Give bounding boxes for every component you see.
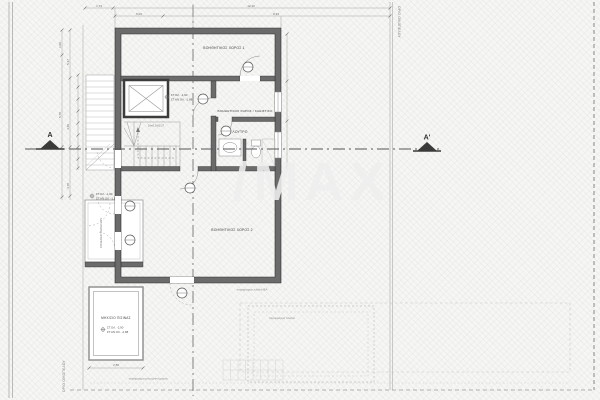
elevator-shaft xyxy=(124,80,168,117)
drawing-sheet: ΟΡΙΟ ΟΙΚΟΠΕΔΟΥ ΟΡΙΟ ΟΙΚΟΠΕΔΟΥ περίφραγμα… xyxy=(0,0,600,400)
dim-left4: 4,40 xyxy=(66,124,70,130)
stair-up-arrow xyxy=(138,130,174,158)
stair-note: 16×0,19/0,27 xyxy=(148,124,165,128)
floor-plan-svg: ΟΡΙΟ ΟΙΚΟΠΕΔΟΥ ΟΡΙΟ ΟΙΚΟΠΕΔΟΥ περίφραγμα… xyxy=(0,0,600,400)
fence-label-side: περίφραγμα πλαϊνό xyxy=(269,316,295,320)
dim-top1b: 12,10 xyxy=(247,4,255,8)
room-label-bath: ΛΟΥΤΡΟ xyxy=(232,130,247,134)
room-label-aux2: ΒΟΗΘΗΤΙΚΟΣ ΧΩΡΟΣ 2 xyxy=(211,228,253,232)
dim-left5: 4,70 xyxy=(66,183,70,189)
staircase xyxy=(124,122,180,167)
boundary-label-left: ΟΡΙΟ ΟΙΚΟΠΕΔΟΥ xyxy=(62,360,66,392)
room-label-aux1: ΒΟΗΘΗΤΙΚΟΣ ΧΩΡΟΣ 1 xyxy=(203,46,245,50)
section-label-a: A xyxy=(47,132,52,139)
fence-label-front: περίφραγμα μπροστινή μεριά xyxy=(128,377,167,381)
room-label-aux-living: ΒΟΗΘΗΤΙΚΟΣ ΧΩΡΟΣ / ΚΑΘΙΣΤΙΚΟ xyxy=(218,109,273,113)
door-tag xyxy=(125,235,135,245)
dim-annex-width: 2,50 xyxy=(113,363,119,367)
elevation-terrace-line2: ΣΤ.ΑΝ.ΟΛ. -1,88 xyxy=(96,197,118,201)
fence-grid-detail xyxy=(223,360,283,380)
terrace xyxy=(85,200,143,267)
section-marker-a xyxy=(36,140,64,149)
pergola-label: COVERED PERGOLAS xyxy=(99,218,103,248)
door-tag xyxy=(177,288,187,298)
elevation-annex-line2: ΣΤ.ΑΝ.ΟΛ. -2,88 xyxy=(107,330,129,334)
door-tag xyxy=(243,62,253,72)
watermark: /MAX xyxy=(233,152,392,212)
section-marker-a-prime xyxy=(413,142,441,151)
dim-top1a: 1,73 xyxy=(96,4,102,8)
door-tag xyxy=(125,201,135,211)
toilet-tank xyxy=(252,140,261,146)
bathroom-sink xyxy=(223,143,237,153)
fence-dotted-enclosure xyxy=(90,303,570,383)
pool-outline xyxy=(248,306,374,382)
elevation-main-line1: ΣΤ.ΟΛ. -1,90 xyxy=(171,93,188,97)
elevation-main-line2: ΣΤ.ΑΝ.ΟΛ. -1,88 xyxy=(171,98,193,102)
elevation-annex-line1: ΣΤ.ΟΛ. -2,90 xyxy=(107,326,124,330)
dim-top2a: 5,03 xyxy=(136,12,142,16)
dim-top2b: 8,23 xyxy=(273,12,279,16)
door-tag xyxy=(221,126,231,136)
annex-pool-mech xyxy=(89,287,143,360)
dim-left3: 5,17 xyxy=(66,59,70,65)
section-label-a-prime: A' xyxy=(424,135,431,142)
stair-treads xyxy=(124,122,180,167)
level-marker-terrace-icon xyxy=(90,194,95,199)
dim-left2: 5,70 xyxy=(58,112,62,118)
sheet-frame xyxy=(9,2,13,398)
dim-left1: 1,00 xyxy=(58,42,62,48)
boundary-label-right: ΟΡΙΟ ΟΙΚΟΠΕΔΟΥ xyxy=(397,6,401,38)
elevation-terrace-line1: ΣΤ.ΟΛ. -1,90 xyxy=(96,192,113,196)
door-tag xyxy=(185,183,195,193)
room-label-pool-mech: ΜΗΧ/ΣΙΟ ΠΙΣΙΝΑΣ xyxy=(101,316,131,320)
external-stair xyxy=(86,75,114,170)
door-tag xyxy=(198,94,208,104)
fence-label-side-ba: περίφραγμα πλαϊνό ΒΑ xyxy=(237,288,268,292)
